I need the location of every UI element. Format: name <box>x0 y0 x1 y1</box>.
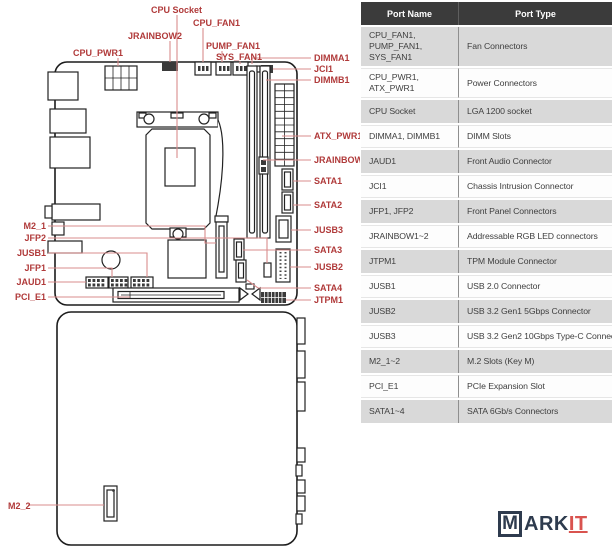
port-type-cell: USB 3.2 Gen1 5Gbps Connector <box>458 300 612 323</box>
port-name-cell: DIMMA1, DIMMB1 <box>361 125 458 148</box>
label-jaud1: JAUD1 <box>16 277 46 287</box>
cpu-power-connector <box>105 66 137 90</box>
logo-it-text: IT <box>569 513 588 536</box>
port-type-cell: Fan Connectors <box>458 27 612 66</box>
label-jusb1: JUSB1 <box>17 248 46 258</box>
table-row: CPU_PWR1, ATX_PWR1 Power Connectors <box>361 68 612 98</box>
label-m2-1: M2_1 <box>23 221 46 231</box>
table-row: CPU_FAN1, PUMP_FAN1, SYS_FAN1 Fan Connec… <box>361 27 612 66</box>
jrainbow2-header <box>162 62 178 71</box>
m2-1-slot <box>215 216 228 278</box>
jusb3-port <box>276 216 291 242</box>
manual-page: CPU Socket CPU_FAN1 JRAINBOW2 PUMP_FAN1 … <box>0 0 612 550</box>
table-row: SATA1~4 SATA 6Gb/s Connectors <box>361 400 612 423</box>
port-type-cell: LGA 1200 socket <box>458 100 612 123</box>
chipset-shape <box>168 240 206 278</box>
label-jfp1: JFP1 <box>24 263 46 273</box>
port-name-cell: JAUD1 <box>361 150 458 173</box>
atx-power-connector <box>275 84 294 166</box>
port-type-cell: Addressable RGB LED connectors <box>458 225 612 248</box>
table-row: JRAINBOW1~2 Addressable RGB LED connecto… <box>361 225 612 248</box>
jtpm1-header <box>261 292 286 303</box>
port-name-cell: JTPM1 <box>361 250 458 273</box>
jfp2-header <box>264 263 271 277</box>
label-sata3: SATA3 <box>314 245 342 255</box>
label-sata4: SATA4 <box>314 283 342 293</box>
table-row: JUSB2 USB 3.2 Gen1 5Gbps Connector <box>361 300 612 323</box>
port-type-cell: DIMM Slots <box>458 125 612 148</box>
table-row: JUSB1 USB 2.0 Connector <box>361 275 612 298</box>
label-m2-2: M2_2 <box>8 501 31 511</box>
label-sata1: SATA1 <box>314 176 342 186</box>
label-dimmb1: DIMMB1 <box>314 75 350 85</box>
port-type-cell: USB 2.0 Connector <box>458 275 612 298</box>
label-jrainbow1: JRAINBOW1 <box>314 155 360 165</box>
motherboard-diagram: CPU Socket CPU_FAN1 JRAINBOW2 PUMP_FAN1 … <box>0 0 360 550</box>
markit-logo: M ARK IT <box>498 511 588 537</box>
label-jtpm1: JTPM1 <box>314 295 343 305</box>
port-name-cell: PCI_E1 <box>361 375 458 398</box>
label-jfp2: JFP2 <box>24 233 46 243</box>
label-dimma1: DIMMA1 <box>314 53 350 63</box>
label-sys-fan1: SYS_FAN1 <box>216 52 262 62</box>
label-jci1: JCI1 <box>314 64 333 74</box>
port-name-cell: CPU Socket <box>361 100 458 123</box>
port-name-cell: CPU_PWR1, ATX_PWR1 <box>361 68 458 98</box>
port-name-cell: JUSB2 <box>361 300 458 323</box>
board-bottom-view <box>57 312 305 545</box>
label-jusb2: JUSB2 <box>314 262 343 272</box>
column-header-port-type: Port Type <box>458 2 612 25</box>
bottom-pin-headers <box>86 277 153 288</box>
port-type-cell: TPM Module Connector <box>458 250 612 273</box>
port-name-cell: M2_1~2 <box>361 350 458 373</box>
label-jrainbow2: JRAINBOW2 <box>128 31 182 41</box>
table-row: JCI1 Chassis Intrusion Connector <box>361 175 612 198</box>
port-name-cell: JRAINBOW1~2 <box>361 225 458 248</box>
label-atx-pwr1: ATX_PWR1 <box>314 131 360 141</box>
m2-2-slot <box>104 486 117 521</box>
port-reference-table: Port Name Port Type CPU_FAN1, PUMP_FAN1,… <box>361 0 612 425</box>
label-pci-e1: PCI_E1 <box>15 292 46 302</box>
port-name-cell: JFP1, JFP2 <box>361 200 458 223</box>
port-type-cell: Chassis Intrusion Connector <box>458 175 612 198</box>
logo-ark-text: ARK <box>524 513 569 536</box>
port-name-cell: SATA1~4 <box>361 400 458 423</box>
port-type-cell: Front Panel Connectors <box>458 200 612 223</box>
table-row: JAUD1 Front Audio Connector <box>361 150 612 173</box>
jusb2-header <box>276 249 290 282</box>
port-name-cell: JCI1 <box>361 175 458 198</box>
port-type-cell: Power Connectors <box>458 68 612 98</box>
table-row: PCI_E1 PCIe Expansion Slot <box>361 375 612 398</box>
label-pump-fan1: PUMP_FAN1 <box>206 41 260 51</box>
table-row: JFP1, JFP2 Front Panel Connectors <box>361 200 612 223</box>
port-type-cell: SATA 6Gb/s Connectors <box>458 400 612 423</box>
table-row: M2_1~2 M.2 Slots (Key M) <box>361 350 612 373</box>
label-cpu-pwr1: CPU_PWR1 <box>73 48 123 58</box>
column-header-port-name: Port Name <box>361 2 458 25</box>
port-type-cell: USB 3.2 Gen2 10Gbps Type-C Connector <box>458 325 612 348</box>
label-jusb3: JUSB3 <box>314 225 343 235</box>
table-row: JUSB3 USB 3.2 Gen2 10Gbps Type-C Connect… <box>361 325 612 348</box>
table-row: CPU Socket LGA 1200 socket <box>361 100 612 123</box>
label-cpu-socket: CPU Socket <box>151 5 202 15</box>
port-type-cell: Front Audio Connector <box>458 150 612 173</box>
logo-m-box: M <box>498 511 522 537</box>
port-type-cell: PCIe Expansion Slot <box>458 375 612 398</box>
sata3-sata4-ports <box>234 239 246 282</box>
label-sata2: SATA2 <box>314 200 342 210</box>
port-type-cell: M.2 Slots (Key M) <box>458 350 612 373</box>
table-header-row: Port Name Port Type <box>361 2 612 25</box>
cmos-battery <box>102 251 120 269</box>
label-cpu-fan1: CPU_FAN1 <box>193 18 240 28</box>
table-row: JTPM1 TPM Module Connector <box>361 250 612 273</box>
table-row: DIMMA1, DIMMB1 DIMM Slots <box>361 125 612 148</box>
port-name-cell: JUSB1 <box>361 275 458 298</box>
port-name-cell: CPU_FAN1, PUMP_FAN1, SYS_FAN1 <box>361 27 458 66</box>
port-name-cell: JUSB3 <box>361 325 458 348</box>
